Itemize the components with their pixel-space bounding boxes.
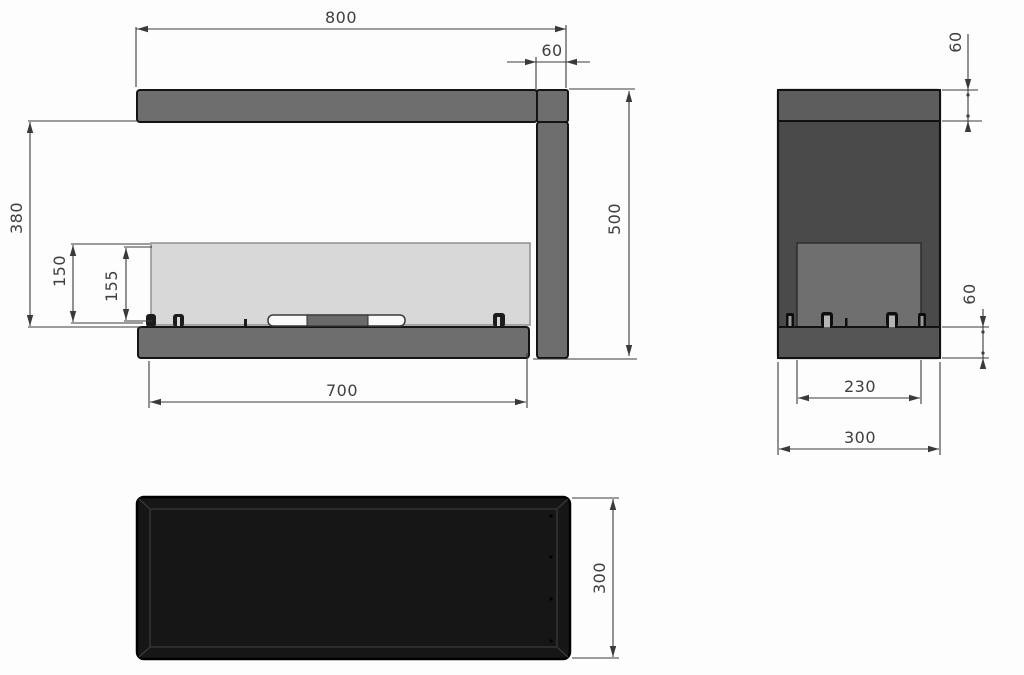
- dim-front-overall-width: 800: [136, 8, 566, 88]
- dim-side-overall-depth: 300: [778, 362, 940, 455]
- technical-drawing-canvas: 800 60 380 150: [0, 0, 1024, 675]
- dim-side-top-frame: 60: [942, 31, 982, 132]
- dim-side-bottom-frame: 60: [942, 283, 989, 369]
- front-right-bar: [537, 122, 568, 358]
- dim-front-inner-height: 380: [7, 121, 142, 327]
- front-corner-piece: [537, 90, 568, 122]
- dim-bottom-depth: 300: [572, 498, 619, 658]
- side-top-strip: [778, 90, 940, 121]
- dim-label-380: 380: [7, 202, 26, 234]
- front-bottom-bar: [138, 327, 529, 358]
- dim-front-glass-height: 150: [50, 244, 150, 323]
- burner-tick: [244, 319, 247, 326]
- dim-side-inner-depth: 230: [797, 360, 921, 404]
- dim-label-155: 155: [102, 270, 121, 302]
- dim-label-230: 230: [844, 377, 876, 396]
- dim-label-500: 500: [605, 203, 624, 235]
- side-view: 60 60 230 300: [778, 31, 989, 455]
- bottom-view: 300: [137, 497, 619, 659]
- dim-front-opening-width: 700: [149, 353, 527, 408]
- burner-center-cover: [307, 315, 368, 326]
- side-inner-panel: [797, 243, 921, 327]
- side-bottom-strip: [778, 327, 940, 358]
- dim-label-300-bottom: 300: [590, 562, 609, 594]
- dim-front-opening-height: 155: [102, 247, 152, 321]
- dim-label-60-side-bottom: 60: [960, 283, 979, 304]
- burner-tick: [845, 318, 848, 326]
- dim-label-60-side-top: 60: [946, 31, 965, 52]
- dim-label-300-side: 300: [844, 428, 876, 447]
- dim-label-150: 150: [50, 255, 69, 287]
- dim-label-800: 800: [325, 8, 357, 27]
- front-glass-panel: [151, 243, 530, 325]
- dim-front-frame-depth: 60: [507, 41, 590, 90]
- fireplace-dimension-drawing: 800 60 380 150: [0, 0, 1024, 675]
- front-view: 800 60 380 150: [7, 8, 637, 408]
- bottom-tray: [137, 497, 570, 659]
- dim-label-700: 700: [326, 381, 358, 400]
- dim-label-60-front: 60: [541, 41, 562, 60]
- front-top-bar: [137, 90, 537, 122]
